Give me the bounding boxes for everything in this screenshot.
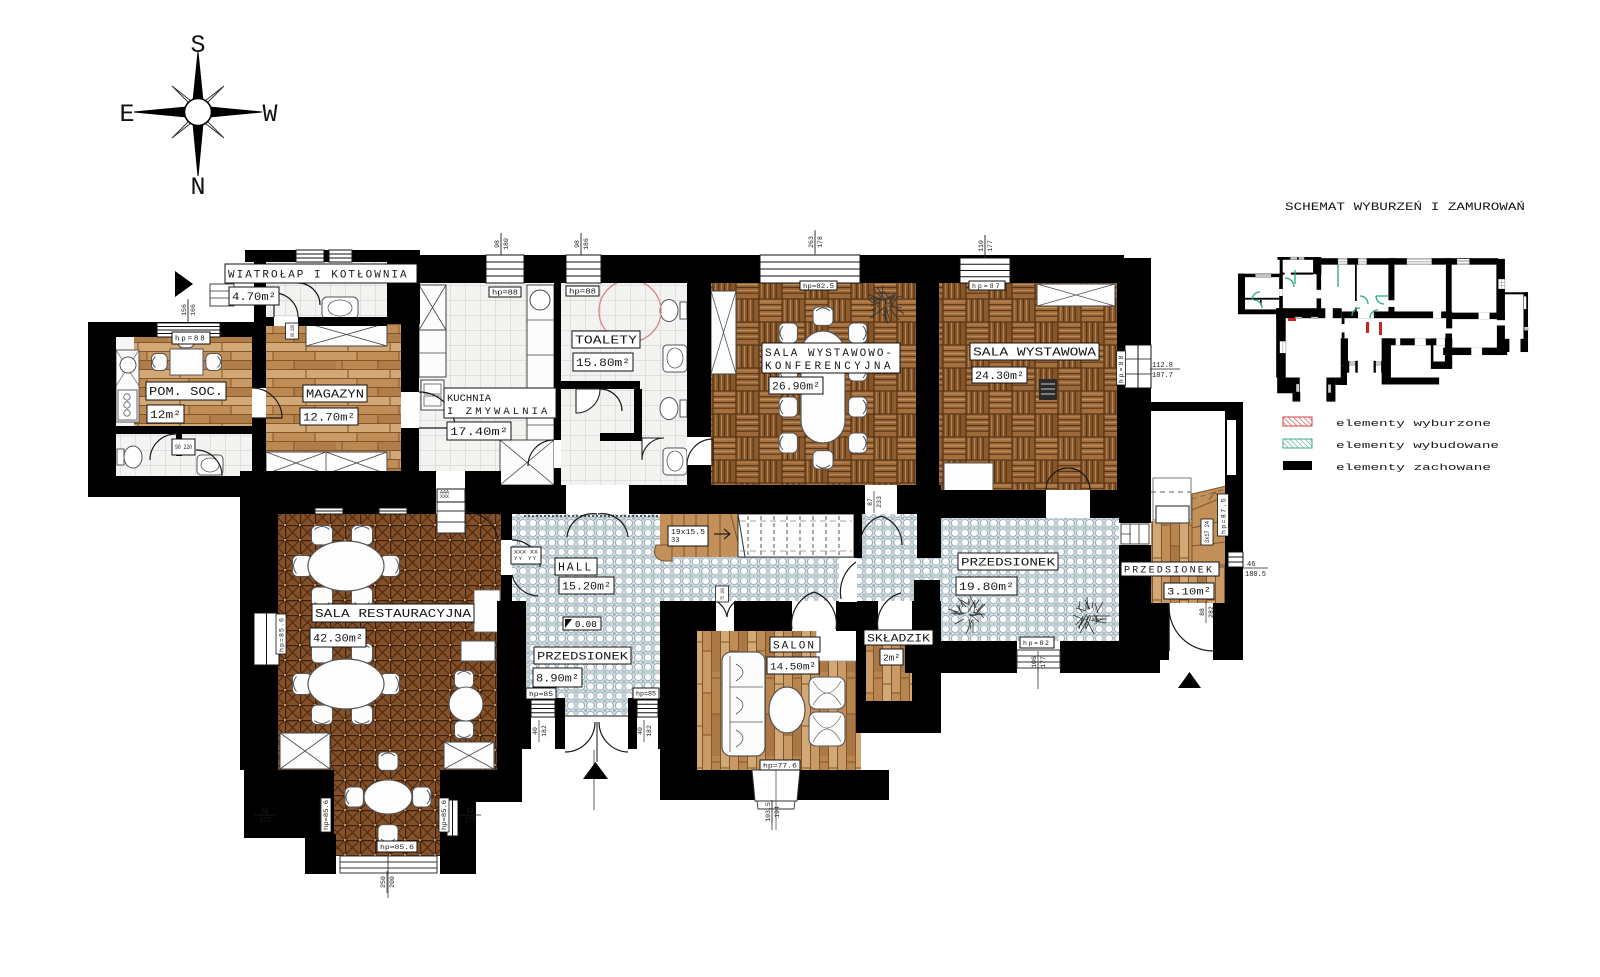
svg-text:hp=87: hp=87 (972, 283, 1002, 290)
svg-text:hp=85: hp=85 (529, 691, 553, 698)
svg-text:52: 52 (466, 808, 474, 815)
svg-text:SCHEMAT WYBURZEŃ I ZAMUROWAŃ: SCHEMAT WYBURZEŃ I ZAMUROWAŃ (1285, 200, 1525, 214)
svg-text:87: 87 (867, 498, 874, 506)
svg-text:40: 40 (637, 727, 644, 735)
svg-text:90 220: 90 220 (175, 444, 192, 451)
svg-text:98: 98 (574, 240, 581, 248)
svg-text:166: 166 (190, 304, 197, 316)
svg-text:SALON: SALON (773, 641, 816, 653)
svg-text:26.90m²: 26.90m² (772, 382, 820, 394)
svg-text:177: 177 (260, 817, 271, 824)
svg-text:W: W (262, 100, 277, 129)
svg-text:PRZEDSIONEK: PRZEDSIONEK (961, 558, 1055, 570)
svg-text:17.40m²: 17.40m² (450, 427, 508, 439)
svg-text:PRZEDSIONEK: PRZEDSIONEK (537, 652, 628, 664)
svg-text:4.70m²: 4.70m² (232, 292, 276, 304)
svg-text:hp=88: hp=88 (1118, 353, 1125, 383)
svg-text:186: 186 (583, 238, 590, 250)
svg-text:hp=85.6: hp=85.6 (278, 617, 285, 652)
svg-text:I ZMYWALNIA: I ZMYWALNIA (447, 406, 550, 418)
svg-text:98: 98 (494, 240, 501, 248)
svg-text:177: 177 (987, 240, 994, 252)
svg-text:0.00: 0.00 (575, 620, 597, 630)
svg-text:178: 178 (817, 236, 824, 248)
svg-text:hp=85.6: hp=85.6 (441, 800, 448, 830)
svg-text:194: 194 (774, 806, 781, 818)
svg-text:elementy wybudowane: elementy wybudowane (1336, 440, 1499, 451)
svg-text:180.5: 180.5 (1245, 571, 1266, 579)
svg-text:YY YY: YY YY (514, 555, 538, 562)
svg-text:19.80m²: 19.80m² (959, 582, 1014, 594)
svg-text:WIATROŁAP I KOTŁOWNIA: WIATROŁAP I KOTŁOWNIA (228, 270, 409, 282)
svg-text:12m²: 12m² (150, 410, 181, 422)
svg-text:33: 33 (671, 537, 679, 545)
svg-text:hp=77.6: hp=77.6 (763, 762, 797, 769)
svg-text:106: 106 (1031, 656, 1038, 668)
svg-text:14.50m²: 14.50m² (770, 661, 816, 673)
svg-text:hp=88: hp=88 (492, 290, 518, 298)
svg-text:263: 263 (808, 236, 815, 248)
svg-text:110: 110 (978, 240, 985, 252)
svg-text:SKŁADZIK: SKŁADZIK (867, 634, 930, 646)
svg-text:19x15.5: 19x15.5 (671, 529, 705, 537)
svg-text:75 196: 75 196 (720, 588, 726, 600)
svg-text:180: 180 (503, 238, 510, 250)
svg-text:88: 88 (1199, 608, 1206, 616)
svg-text:TOALETY: TOALETY (575, 335, 637, 348)
svg-text:elementy zachowane: elementy zachowane (1336, 462, 1491, 473)
svg-text:8.90m²: 8.90m² (536, 674, 579, 686)
svg-text:12.70m²: 12.70m² (303, 413, 355, 425)
svg-text:200: 200 (389, 876, 396, 888)
svg-text:156: 156 (181, 304, 188, 316)
svg-text:52: 52 (261, 808, 269, 815)
svg-text:hp=85: hp=85 (636, 691, 656, 698)
svg-text:hp=82: hp=82 (1023, 640, 1051, 647)
svg-text:40: 40 (532, 727, 539, 735)
svg-text:E: E (119, 100, 134, 129)
svg-text:elementy wyburzone: elementy wyburzone (1336, 418, 1491, 429)
svg-text:KONFERENCYJNA: KONFERENCYJNA (765, 361, 894, 373)
svg-text:15.80m²: 15.80m² (576, 358, 630, 370)
svg-text:42.30m²: 42.30m² (313, 634, 363, 646)
svg-text:hp=88: hp=88 (569, 289, 596, 297)
svg-text:XXX: XXX (440, 494, 449, 500)
svg-text:SALA RESTAURACYJNA: SALA RESTAURACYJNA (315, 608, 471, 621)
svg-text:HALL: HALL (558, 562, 593, 575)
svg-text:3.10m²: 3.10m² (1167, 588, 1211, 599)
svg-text:MAGAZYN: MAGAZYN (306, 389, 364, 402)
svg-text:15.20m²: 15.20m² (562, 582, 611, 594)
svg-text:24.30m²: 24.30m² (975, 371, 1024, 383)
svg-text:N: N (190, 173, 205, 202)
svg-text:KUCHNIA: KUCHNIA (447, 393, 492, 405)
svg-text:182: 182 (646, 725, 653, 737)
svg-text:POM. SOC.: POM. SOC. (149, 386, 223, 399)
svg-text:SALA WYSTAWOWO-: SALA WYSTAWOWO- (765, 348, 894, 360)
svg-text:177: 177 (465, 817, 476, 824)
svg-text:3x17 24: 3x17 24 (1204, 521, 1211, 543)
svg-text:hp=85.6: hp=85.6 (380, 844, 414, 851)
svg-text:282: 282 (1208, 606, 1215, 618)
svg-text:hp=82.5: hp=82.5 (803, 283, 834, 290)
svg-text:103.5: 103.5 (765, 802, 772, 822)
svg-text:hp=87.5: hp=87.5 (1220, 497, 1227, 534)
svg-text:S: S (190, 31, 205, 60)
svg-text:2m²: 2m² (883, 652, 900, 663)
svg-text:182: 182 (541, 725, 548, 737)
svg-text:250: 250 (380, 876, 387, 888)
svg-text:187.7: 187.7 (1152, 372, 1173, 380)
svg-text:90 220: 90 220 (290, 325, 296, 337)
svg-text:hp=88: hp=88 (175, 336, 207, 344)
svg-text:177: 177 (1040, 656, 1047, 668)
svg-text:SALA WYSTAWOWA: SALA WYSTAWOWA (973, 347, 1096, 360)
svg-text:233: 233 (876, 496, 883, 508)
svg-text:PRZEDSIONEK: PRZEDSIONEK (1124, 566, 1214, 577)
svg-text:hp=85.6: hp=85.6 (323, 800, 330, 830)
